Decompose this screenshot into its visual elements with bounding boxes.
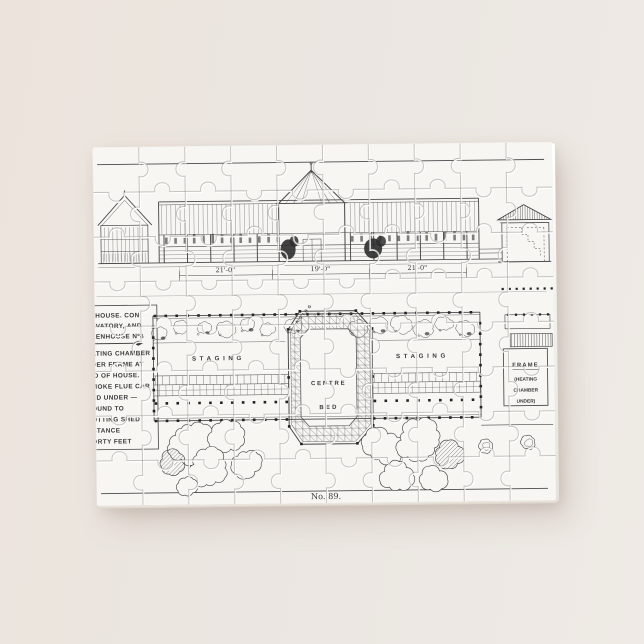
note-line: THOUSE. CON [93,312,140,320]
note-line: ID OF HOUSE. [93,372,140,380]
note-line: STANCE [93,427,121,434]
jigsaw-puzzle: 21'-0" 19'-0" 21'-0" [93,142,556,505]
centre-bed-label-2: BED [319,405,338,411]
greenhouse-range [159,198,480,263]
dimension-label-right: 21'-0" [407,264,427,272]
frame-label-sub1: (HEATING [514,376,537,382]
small-greenhouse [97,190,152,264]
note-line: ORTY FEET [93,438,132,445]
note-line: OUND TO [93,405,124,412]
dimension-label-mid: 19'-0" [310,265,330,273]
note-line: ED UNDER — [93,394,138,402]
plan-staging-right-label: STAGING [396,353,449,361]
puzzle-artwork: 21'-0" 19'-0" 21'-0" [93,142,556,505]
product-photo-background: 21'-0" 19'-0" 21'-0" [0,0,644,644]
centre-octagon [287,309,375,445]
frame-label-sub3: UNDER) [517,398,536,404]
